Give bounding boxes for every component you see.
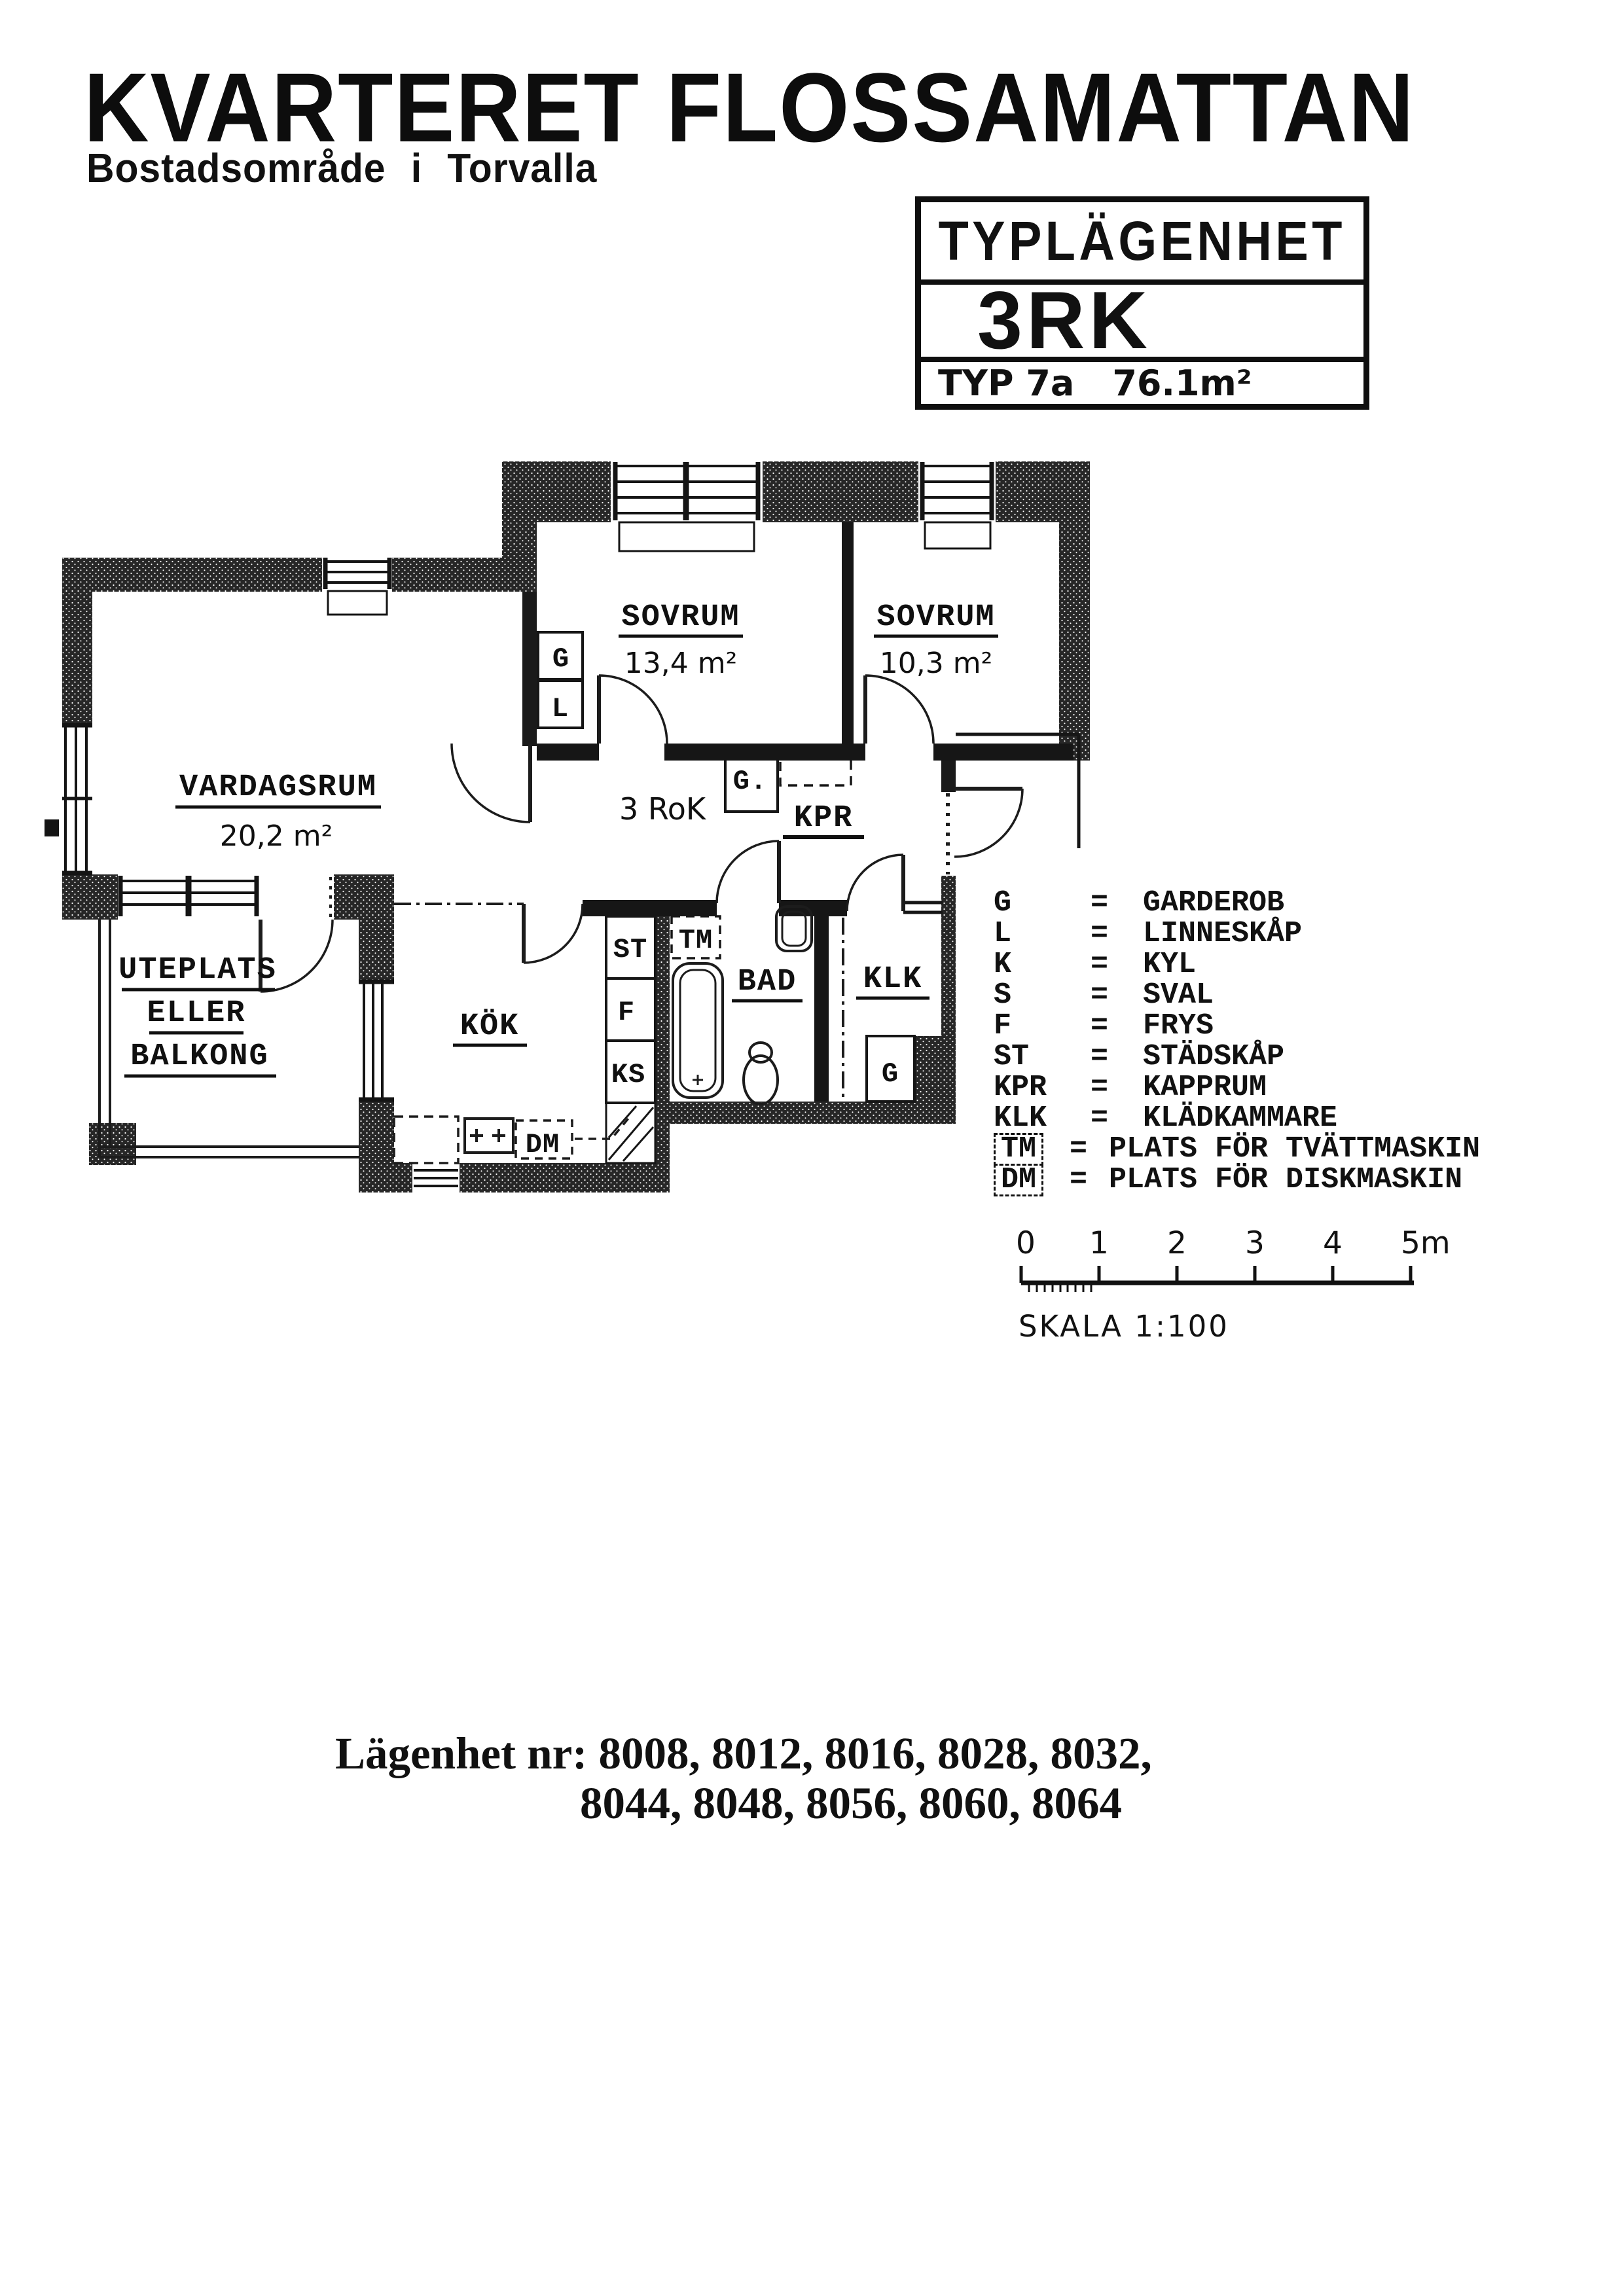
exterior-walls — [59, 459, 1090, 1193]
label-uteplats-2: ELLER — [147, 996, 245, 1031]
legend-eq: = — [1091, 1102, 1143, 1135]
legend-row-kpr: KPR=KAPPRUM — [994, 1072, 1480, 1103]
legend-eq: = — [1091, 1009, 1143, 1043]
legend-eq: = — [1091, 1071, 1143, 1104]
legend-abbr: KLK — [994, 1102, 1091, 1135]
dm-leader — [575, 1115, 631, 1139]
legend-row-klk: KLK=KLÄDKAMMARE — [994, 1103, 1480, 1134]
bathtub-inner — [680, 970, 715, 1091]
legend-row-dm: DM=PLATS FÖR DISKMASKIN — [994, 1164, 1480, 1195]
legend-abbr-tm: TM — [994, 1133, 1043, 1166]
door-entry — [948, 789, 1022, 874]
legend-eq: = — [1091, 917, 1143, 950]
legend-abbr: K — [994, 948, 1091, 981]
legend-abbr: F — [994, 1009, 1091, 1043]
label-hall-3rok: 3 RoK — [619, 791, 707, 827]
legend-row-l: L=LINNESKÅP — [994, 918, 1480, 949]
legend-abbr: G — [994, 886, 1091, 920]
toilet-seat — [749, 1043, 772, 1062]
legend-abbr-dm: DM — [994, 1164, 1043, 1196]
legend: G=GARDEROB L=LINNESKÅP K=KYL S=SVAL F=FR… — [994, 888, 1480, 1195]
label-uteplats-1: UTEPLATS — [118, 953, 277, 988]
marker-ks: KS — [611, 1059, 645, 1090]
legend-text: PLATS FÖR DISKMASKIN — [1109, 1163, 1462, 1196]
legend-eq: = — [1091, 1040, 1143, 1073]
scale-tick-5: 5m — [1401, 1225, 1451, 1261]
legend-text: KLÄDKAMMARE — [1143, 1102, 1337, 1135]
legend-text: KAPPRUM — [1143, 1071, 1267, 1104]
door-vardagsrum — [452, 744, 530, 822]
label-kok: KÖK — [460, 1009, 520, 1044]
area-vardagsrum: 20,2 m² — [220, 819, 333, 853]
marker-f: F — [618, 997, 635, 1028]
area-sovrum1: 13,4 m² — [624, 647, 737, 680]
legend-text: SVAL — [1143, 978, 1214, 1012]
scale-tick-2: 2 — [1167, 1225, 1187, 1261]
kitchen-fittings — [394, 1115, 631, 1163]
floorplan-sheet: KVARTERET FLOSSAMATTAN Bostadsområde i T… — [0, 0, 1624, 2296]
apartment-numbers-line1: Lägenhet nr: 8008, 8012, 8016, 8028, 803… — [335, 1728, 1152, 1780]
marker-tm: TM — [679, 925, 713, 956]
legend-eq: = — [1091, 948, 1143, 981]
label-sovrum1: SOVRUM — [621, 600, 740, 635]
scale-tick-4: 4 — [1323, 1225, 1343, 1261]
scale-tick-1: 1 — [1089, 1225, 1109, 1261]
door-sovrum2 — [865, 675, 933, 744]
counter-section — [394, 1117, 458, 1163]
legend-text: FRYS — [1143, 1009, 1214, 1043]
label-vardagsrum: VARDAGSRUM — [179, 770, 377, 805]
legend-text: KYL — [1143, 948, 1196, 981]
label-bad: BAD — [738, 965, 797, 999]
legend-eq: = — [1070, 1132, 1109, 1166]
legend-abbr: L — [994, 917, 1091, 950]
door-klk — [847, 855, 903, 911]
window-kok — [359, 982, 394, 1100]
marker-g-klk: G — [882, 1058, 899, 1090]
door-sovrum1 — [599, 675, 667, 744]
legend-abbr: ST — [994, 1040, 1091, 1073]
marker-g-bed: G — [552, 643, 569, 675]
hatch-below-ks — [606, 1103, 655, 1163]
legend-row-st: ST=STÄDSKÅP — [994, 1041, 1480, 1072]
closets — [538, 632, 914, 1163]
label-uteplats-3: BALKONG — [130, 1039, 268, 1074]
legend-row-g: G=GARDEROB — [994, 888, 1480, 918]
apartment-numbers-line2: 8044, 8048, 8056, 8060, 8064 — [580, 1778, 1122, 1829]
apartment-numbers-values1: 8008, 8012, 8016, 8028, 8032, — [598, 1729, 1151, 1778]
legend-text: STÄDSKÅP — [1143, 1040, 1284, 1073]
scale-label: SKALA 1:100 — [1019, 1309, 1229, 1344]
marker-dm: DM — [526, 1129, 560, 1160]
window-vardagsrum-bottom — [120, 876, 257, 916]
marker-st: ST — [613, 934, 647, 965]
legend-text: GARDEROB — [1143, 886, 1284, 920]
scale-tick-0: 0 — [1016, 1225, 1036, 1261]
area-sovrum2: 10,3 m² — [880, 647, 992, 680]
legend-eq: = — [1070, 1163, 1109, 1196]
label-kpr: KPR — [794, 801, 854, 836]
label-klk: KLK — [863, 962, 923, 997]
legend-row-s: S=SVAL — [994, 980, 1480, 1011]
scale-tick-3: 3 — [1245, 1225, 1265, 1261]
legend-eq: = — [1091, 886, 1143, 920]
legend-row-f: F=FRYS — [994, 1011, 1480, 1041]
legend-row-tm: TM=PLATS FÖR TVÄTTMASKIN — [994, 1134, 1480, 1164]
legend-abbr: KPR — [994, 1071, 1091, 1104]
legend-row-k: K=KYL — [994, 949, 1480, 980]
marker-l-bed: L — [552, 693, 569, 725]
label-sovrum2: SOVRUM — [876, 600, 995, 635]
door-bad — [717, 841, 779, 903]
legend-text: PLATS FÖR TVÄTTMASKIN — [1109, 1132, 1480, 1166]
window-kok-bottom — [414, 1170, 458, 1186]
legend-text: LINNESKÅP — [1143, 917, 1302, 950]
scale-bar-graphic — [1016, 1258, 1448, 1304]
legend-eq: = — [1091, 978, 1143, 1012]
door-kok — [524, 904, 583, 963]
sink-inner — [782, 912, 806, 946]
apartment-numbers-label: Lägenhet nr: — [335, 1729, 587, 1778]
legend-abbr: S — [994, 978, 1091, 1012]
marker-g-hall: G. — [733, 766, 767, 797]
